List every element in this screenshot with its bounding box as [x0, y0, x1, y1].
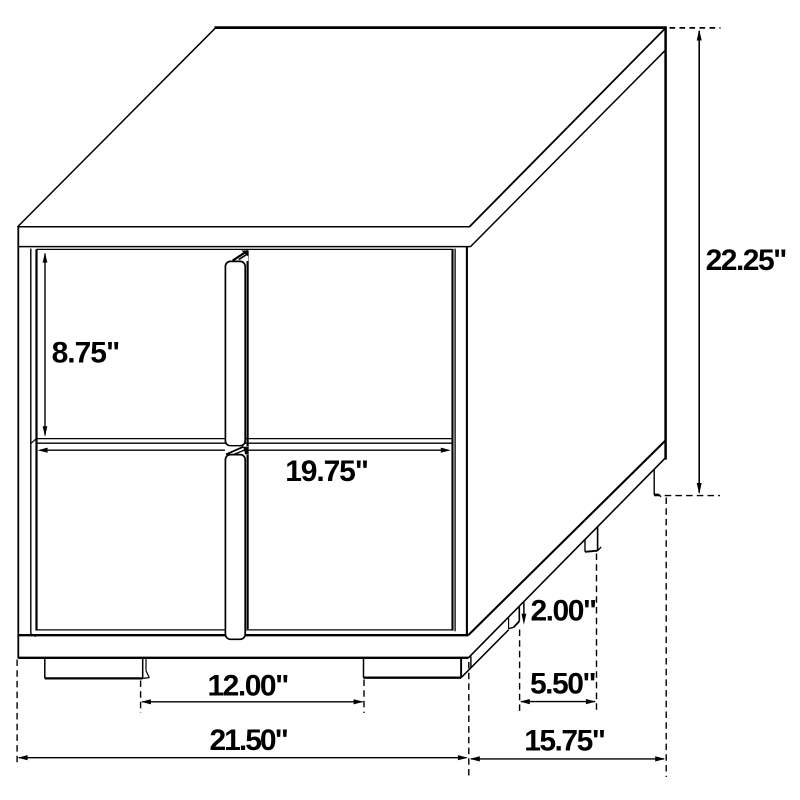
svg-text:5.50": 5.50" — [530, 668, 595, 701]
svg-text:19.75": 19.75" — [285, 455, 368, 488]
svg-text:8.75": 8.75" — [52, 336, 120, 369]
svg-text:15.75": 15.75" — [524, 725, 605, 758]
svg-text:21.50": 21.50" — [210, 724, 288, 757]
svg-text:2.00": 2.00" — [531, 594, 596, 627]
svg-text:12.00": 12.00" — [208, 670, 289, 703]
svg-text:22.25": 22.25" — [706, 244, 787, 277]
